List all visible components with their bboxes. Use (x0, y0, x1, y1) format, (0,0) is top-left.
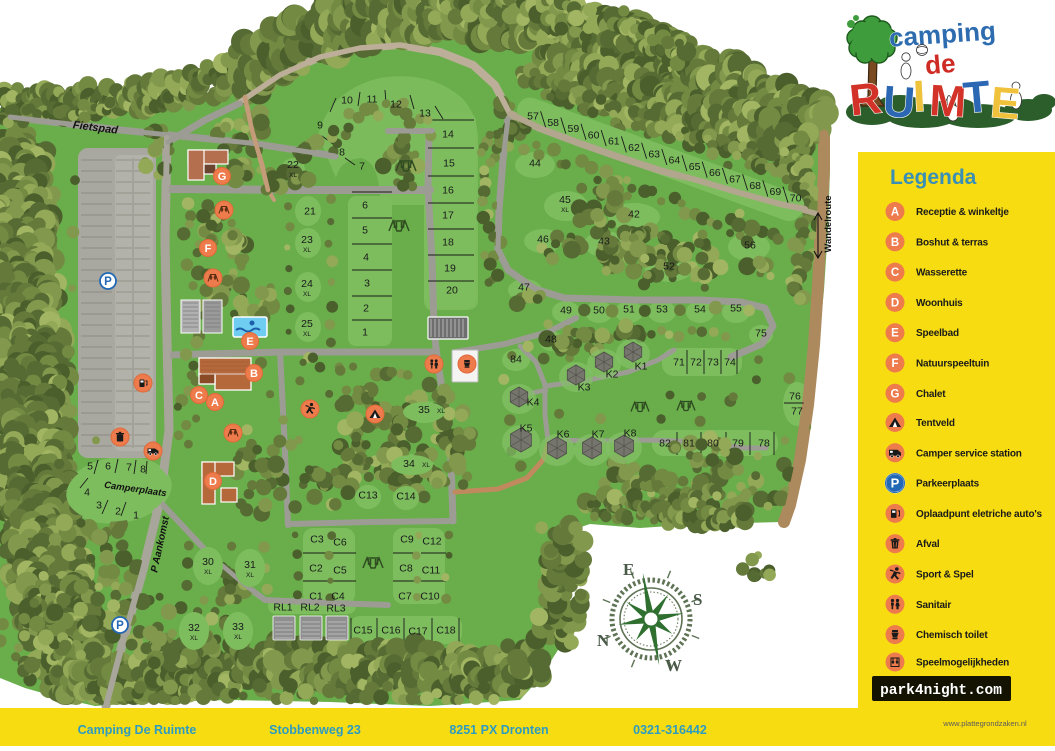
svg-text:3: 3 (364, 278, 370, 290)
svg-text:48: 48 (545, 334, 557, 346)
svg-text:Sport & Spel: Sport & Spel (916, 570, 974, 581)
svg-text:30: 30 (202, 556, 214, 568)
svg-text:68: 68 (749, 180, 761, 192)
svg-text:F: F (205, 243, 212, 255)
svg-text:P: P (891, 476, 900, 491)
svg-text:50: 50 (593, 305, 605, 317)
svg-text:G: G (218, 171, 227, 183)
svg-text:P: P (116, 620, 124, 632)
svg-text:75: 75 (755, 328, 767, 340)
svg-text:F: F (891, 358, 898, 370)
svg-text:XL: XL (234, 634, 242, 641)
svg-text:69: 69 (770, 186, 782, 198)
svg-text:76: 76 (789, 391, 801, 403)
svg-text:I: I (912, 72, 927, 122)
svg-text:Boshut & terras: Boshut & terras (916, 237, 989, 248)
svg-text:65: 65 (689, 161, 701, 173)
svg-text:9: 9 (317, 120, 323, 132)
svg-text:Camping De Ruimte: Camping De Ruimte (78, 723, 197, 737)
svg-text:8: 8 (140, 464, 146, 476)
svg-text:58: 58 (547, 117, 559, 129)
svg-text:RL1: RL1 (273, 602, 292, 614)
svg-text:17: 17 (442, 210, 454, 222)
svg-text:C16: C16 (381, 625, 400, 637)
svg-text:21: 21 (304, 206, 316, 218)
svg-text:7: 7 (126, 462, 132, 474)
svg-text:XL: XL (303, 291, 311, 298)
svg-text:RL3: RL3 (326, 603, 345, 615)
svg-text:79: 79 (732, 438, 744, 450)
svg-text:2: 2 (115, 506, 121, 518)
svg-text:56: 56 (744, 240, 756, 252)
svg-text:B: B (250, 368, 258, 380)
svg-text:Camper service station: Camper service station (916, 448, 1022, 459)
svg-text:C11: C11 (422, 565, 441, 577)
svg-text:23: 23 (301, 234, 313, 246)
svg-text:C18: C18 (436, 625, 455, 637)
svg-text:35: 35 (418, 404, 430, 416)
svg-text:C10: C10 (420, 591, 439, 603)
svg-text:64: 64 (669, 155, 681, 167)
svg-text:Legenda: Legenda (890, 166, 977, 189)
svg-text:11: 11 (367, 94, 378, 106)
svg-text:de: de (924, 48, 957, 81)
svg-text:13: 13 (419, 108, 431, 120)
svg-text:C9: C9 (400, 534, 414, 546)
svg-text:18: 18 (442, 237, 454, 249)
svg-text:N: N (597, 631, 610, 650)
svg-text:71: 71 (673, 357, 685, 369)
svg-text:80: 80 (707, 438, 719, 450)
svg-text:78: 78 (758, 438, 770, 450)
svg-text:84: 84 (510, 354, 522, 366)
svg-text:RL2: RL2 (300, 602, 319, 614)
svg-text:1: 1 (133, 510, 139, 522)
svg-text:32: 32 (188, 622, 200, 634)
svg-text:60: 60 (588, 129, 600, 141)
svg-text:R: R (847, 74, 884, 126)
svg-text:C13: C13 (358, 490, 377, 502)
svg-text:K6: K6 (557, 429, 570, 441)
svg-text:8251 PX Dronten: 8251 PX Dronten (449, 723, 548, 737)
svg-text:0321-316442: 0321-316442 (633, 723, 707, 737)
svg-text:XL: XL (303, 247, 311, 254)
svg-text:E: E (623, 560, 634, 579)
svg-text:E: E (891, 328, 899, 340)
svg-text:62: 62 (628, 142, 640, 154)
svg-text:C6: C6 (333, 537, 347, 549)
svg-text:A: A (211, 397, 219, 409)
svg-text:47: 47 (518, 282, 530, 294)
svg-text:Woonhuis: Woonhuis (916, 298, 963, 309)
svg-text:C3: C3 (310, 534, 324, 546)
svg-text:6: 6 (362, 200, 368, 212)
svg-text:park4night.com: park4night.com (880, 683, 1002, 699)
svg-text:C5: C5 (333, 565, 347, 577)
svg-text:XL: XL (246, 572, 254, 579)
svg-text:XL: XL (289, 172, 297, 179)
svg-text:25: 25 (301, 318, 313, 330)
svg-text:Natuurspeeltuin: Natuurspeeltuin (916, 359, 989, 370)
svg-text:K3: K3 (578, 382, 591, 394)
svg-text:XL: XL (437, 408, 445, 415)
svg-text:61: 61 (608, 136, 620, 148)
svg-text:XL: XL (204, 569, 212, 576)
svg-text:XL: XL (561, 207, 569, 214)
svg-text:42: 42 (628, 209, 640, 221)
svg-text:XL: XL (190, 635, 198, 642)
svg-text:Tentveld: Tentveld (916, 418, 955, 429)
svg-text:E: E (989, 78, 1023, 129)
svg-text:Oplaadpunt eletriche auto's: Oplaadpunt eletriche auto's (916, 509, 1043, 520)
svg-text:46: 46 (537, 234, 549, 246)
svg-text:B: B (891, 237, 899, 249)
svg-text:82: 82 (659, 438, 671, 450)
svg-text:54: 54 (694, 304, 706, 316)
svg-text:XL: XL (303, 331, 311, 338)
svg-text:Wasserette: Wasserette (916, 268, 968, 279)
svg-text:72: 72 (690, 357, 702, 369)
svg-text:20: 20 (446, 285, 458, 297)
svg-text:49: 49 (560, 305, 572, 317)
svg-text:C4: C4 (331, 591, 345, 603)
svg-text:K7: K7 (592, 429, 605, 441)
svg-text:C2: C2 (309, 563, 323, 575)
svg-text:53: 53 (656, 304, 668, 316)
svg-text:59: 59 (568, 123, 580, 135)
svg-text:C12: C12 (422, 536, 441, 548)
svg-text:57: 57 (527, 111, 539, 123)
svg-text:24: 24 (301, 278, 313, 290)
svg-text:73: 73 (707, 357, 719, 369)
svg-text:10: 10 (341, 95, 353, 107)
svg-text:15: 15 (443, 158, 455, 170)
svg-text:52: 52 (663, 261, 675, 273)
svg-text:Receptie & winkeltje: Receptie & winkeltje (916, 207, 1009, 218)
svg-text:7: 7 (359, 161, 365, 173)
svg-text:C17: C17 (408, 626, 427, 638)
svg-text:19: 19 (444, 263, 456, 275)
svg-text:XL: XL (422, 462, 430, 469)
svg-text:55: 55 (730, 303, 742, 315)
svg-text:34: 34 (403, 458, 415, 470)
svg-text:C: C (891, 267, 899, 279)
svg-text:44: 44 (529, 158, 541, 170)
svg-text:E: E (246, 336, 253, 348)
svg-text:www.plattegrondzaken.nl: www.plattegrondzaken.nl (942, 719, 1027, 728)
svg-text:77: 77 (791, 406, 803, 418)
svg-text:81: 81 (683, 438, 695, 450)
svg-text:70: 70 (790, 192, 802, 204)
svg-text:14: 14 (442, 129, 454, 141)
svg-text:S: S (693, 590, 702, 609)
svg-text:K2: K2 (606, 369, 619, 381)
svg-text:G: G (891, 388, 900, 400)
svg-text:6: 6 (105, 461, 111, 473)
svg-text:12: 12 (390, 99, 402, 111)
svg-text:Speelbad: Speelbad (916, 328, 959, 339)
svg-text:D: D (891, 297, 899, 309)
svg-text:C15: C15 (353, 625, 372, 637)
svg-text:C: C (195, 390, 203, 402)
svg-text:66: 66 (709, 167, 721, 179)
svg-text:Wandelroute: Wandelroute (823, 195, 834, 252)
svg-text:Speelmogelijkheden: Speelmogelijkheden (916, 658, 1009, 669)
svg-text:8: 8 (339, 147, 345, 159)
svg-text:4: 4 (84, 487, 90, 499)
svg-text:P: P (104, 276, 112, 288)
svg-text:W: W (665, 656, 682, 675)
svg-text:43: 43 (598, 236, 610, 248)
svg-text:C7: C7 (398, 591, 412, 603)
svg-text:45: 45 (559, 194, 571, 206)
svg-text:1: 1 (362, 327, 368, 339)
svg-text:K4: K4 (527, 397, 540, 409)
svg-text:67: 67 (729, 174, 741, 186)
svg-text:2: 2 (363, 303, 369, 315)
svg-text:3: 3 (96, 500, 102, 512)
svg-text:A: A (891, 207, 899, 219)
svg-text:33: 33 (232, 621, 244, 633)
svg-text:Chalet: Chalet (916, 389, 946, 400)
svg-text:74: 74 (724, 357, 736, 369)
svg-text:K5: K5 (520, 423, 533, 435)
svg-text:C8: C8 (399, 563, 413, 575)
svg-text:D: D (209, 476, 217, 488)
svg-text:5: 5 (87, 461, 93, 473)
svg-text:63: 63 (648, 148, 660, 160)
svg-text:31: 31 (244, 559, 256, 571)
svg-text:Afval: Afval (916, 539, 940, 550)
svg-text:22: 22 (287, 159, 299, 171)
svg-text:Sanitair: Sanitair (916, 600, 951, 611)
svg-text:C14: C14 (396, 491, 415, 503)
svg-text:Stobbenweg 23: Stobbenweg 23 (269, 723, 361, 737)
svg-text:T: T (961, 72, 992, 123)
svg-text:U: U (881, 77, 916, 128)
svg-text:Parkeerplaats: Parkeerplaats (916, 479, 980, 490)
svg-text:K1: K1 (635, 361, 648, 373)
svg-text:4: 4 (363, 252, 369, 264)
svg-text:16: 16 (442, 185, 454, 197)
svg-text:5: 5 (362, 225, 368, 237)
svg-text:51: 51 (623, 304, 635, 316)
svg-text:Chemisch toilet: Chemisch toilet (916, 630, 988, 641)
svg-text:K8: K8 (624, 428, 637, 440)
